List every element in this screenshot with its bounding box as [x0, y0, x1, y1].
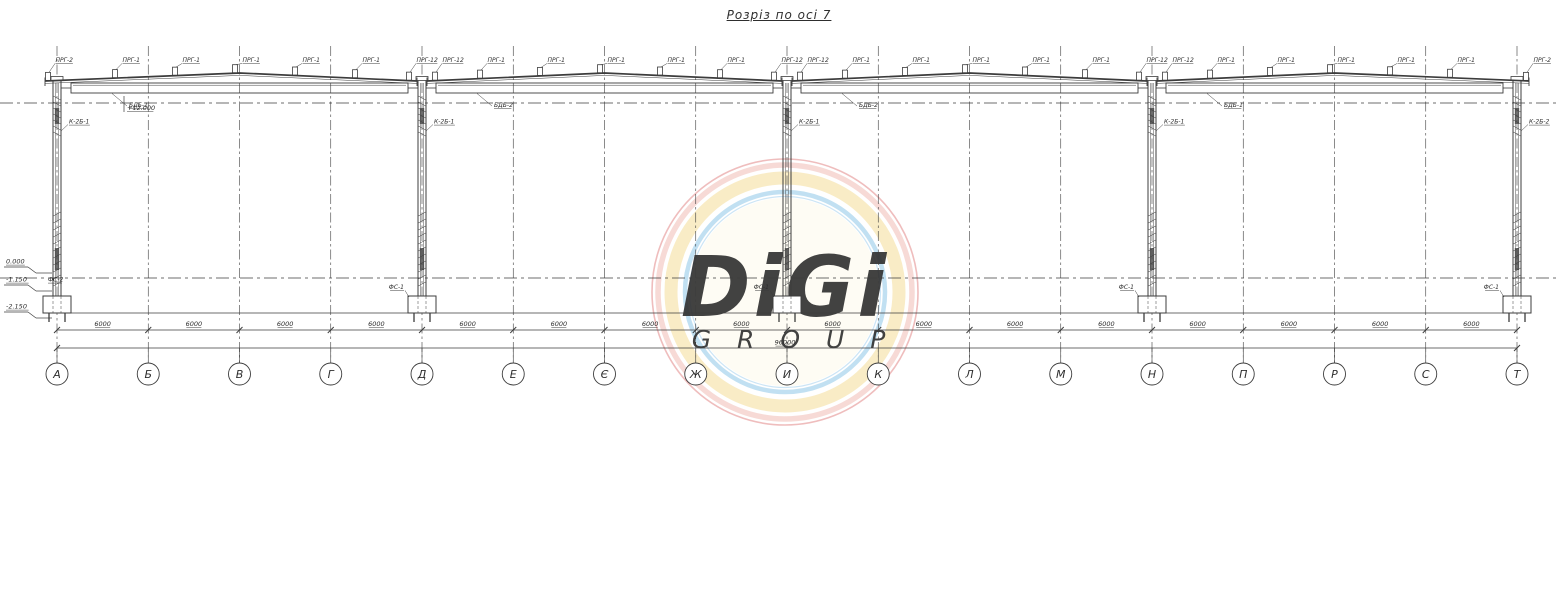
purlin-label-leader [1527, 64, 1533, 73]
purlin [903, 67, 908, 75]
column-label-leader [426, 125, 433, 132]
elevation-text: -1.150 [6, 276, 27, 284]
purlin-label-leader [541, 64, 547, 68]
bay-dimension-text: 6000 [186, 320, 203, 328]
purlin-label-leader [1140, 64, 1146, 73]
column-label-leader [791, 125, 798, 132]
purlin-label-leader [410, 64, 416, 73]
purlin-label: ПРГ-1 [1033, 57, 1050, 64]
purlin [353, 70, 358, 78]
purlin-label: ПРГ-1 [123, 57, 140, 64]
column-label-leader [1156, 125, 1163, 132]
axis-bubble-label: Ж [689, 368, 703, 381]
column-cap [1146, 77, 1158, 81]
purlin-label-leader [356, 64, 362, 70]
beam-label: БДБ-2 [859, 102, 878, 109]
purlin-label: ПРГ-1 [1458, 57, 1475, 64]
column-label: К-2Б-1 [1164, 119, 1184, 126]
purlin [1448, 69, 1453, 77]
footing [408, 296, 436, 313]
column-splice-mark [1150, 248, 1154, 270]
purlin-label: ПРГ-1 [303, 57, 320, 64]
column-cap [416, 77, 428, 81]
footing-label-leader [1500, 291, 1504, 298]
purlin-label-leader [846, 64, 852, 71]
axis-bubble-label: Б [144, 368, 152, 381]
elevation-flag-diag [28, 312, 36, 318]
axis-bubble-label: Н [1148, 368, 1156, 381]
column-label-leader [61, 125, 68, 132]
footing [1503, 296, 1531, 313]
bay-dimension-text: 6000 [1189, 320, 1206, 328]
purlin-label: ПРГ-1 [853, 57, 870, 64]
purlin [598, 65, 603, 73]
purlin [1083, 70, 1088, 78]
roof-span: БДБ-1ПРГ-2ПРГ-1ПРГ-1ПРГ-1ПРГ-1ПРГ-1ПРГ-1… [45, 57, 438, 109]
bay-dimension-text: 6000 [1098, 320, 1115, 328]
purlin-label-leader [1391, 64, 1397, 67]
beam-label: БДБ-1 [1224, 102, 1243, 109]
purlin-label: ПРГ-2 [1534, 57, 1552, 64]
purlin [718, 70, 723, 78]
column-splice-mark [55, 108, 59, 124]
purlin [658, 67, 663, 75]
column-label: К-2Б-1 [799, 119, 819, 126]
roof-level-text: +12.000 [127, 104, 155, 112]
column-splice-mark [785, 248, 789, 270]
purlin [1208, 70, 1213, 78]
column-splice-mark [1515, 108, 1519, 124]
footing-label: ФС-1 [754, 284, 769, 291]
roof-span: БДБ-1ПРГ-12ПРГ-1ПРГ-1ПРГ-1ПРГ-1ПРГ-1ПРГ-… [1156, 57, 1551, 109]
purlin-label: ПРГ-1 [548, 57, 565, 64]
purlin-label-leader [721, 64, 727, 70]
purlin-label-leader [436, 64, 442, 73]
purlin-label: ПРГ-12 [1173, 57, 1194, 64]
bay-dimension-text: 6000 [94, 320, 111, 328]
axis-bubble-label: М [1056, 368, 1066, 381]
bay-dimension-text: 6000 [459, 320, 476, 328]
purlin [772, 72, 777, 80]
purlin-label-leader [1331, 64, 1337, 65]
purlin-label: ПРГ-12 [782, 57, 803, 64]
purlin-label: ПРГ-1 [1278, 57, 1295, 64]
purlin-label: ПРГ-12 [443, 57, 464, 64]
purlin-label-leader [1026, 64, 1032, 68]
axis-bubble-label: Г [328, 368, 335, 381]
purlin-label: ПРГ-1 [973, 57, 990, 64]
beam-label: БДБ-2 [494, 102, 513, 109]
column-label: К-2Б-1 [434, 119, 454, 126]
bay-dimension-text: 6000 [1372, 320, 1389, 328]
bay-dimension-text: 6000 [916, 320, 933, 328]
purlin-label: ПРГ-1 [183, 57, 200, 64]
footing [773, 296, 801, 313]
axis-bubble-label: Л [964, 368, 973, 381]
roof-span: БДБ-2ПРГ-12ПРГ-1ПРГ-1ПРГ-1ПРГ-1ПРГ-1ПРГ-… [426, 57, 803, 109]
purlin [173, 67, 178, 75]
axis-bubble-label: К [874, 368, 883, 381]
purlin-label: ПРГ-1 [488, 57, 505, 64]
footing [43, 296, 71, 313]
purlin-label: ПРГ-1 [1398, 57, 1415, 64]
purlin-label-leader [801, 64, 807, 73]
purlin [798, 72, 803, 80]
axis-bubble-label: Е [510, 368, 517, 381]
purlin-label-leader [601, 64, 607, 65]
bay-dimension-text: 6000 [277, 320, 294, 328]
beam-label-leader [477, 94, 492, 107]
purlin-label: ПРГ-1 [243, 57, 260, 64]
purlin-label: ПРГ-1 [1218, 57, 1235, 64]
purlin [1524, 72, 1529, 80]
purlin [1023, 67, 1028, 75]
beam-label-leader [1207, 94, 1222, 107]
bay-dimension-text: 6000 [368, 320, 385, 328]
bay-dimension-text: 6000 [642, 320, 659, 328]
bay-dimension-text: 6000 [1007, 320, 1024, 328]
column-label-leader [1521, 125, 1528, 132]
axis-bubble-label: С [1422, 368, 1430, 381]
bay-dimension-text: 6000 [1281, 320, 1298, 328]
purlin-label-leader [775, 64, 781, 73]
section-drawing: DiGiG R O U PАБВГДЕЄЖИКЛМНПРСТ6000600060… [0, 0, 1558, 600]
purlin-label-leader [1086, 64, 1092, 70]
bay-dimension-text: 6000 [824, 320, 841, 328]
footing-label: ФС-1 [389, 284, 404, 291]
purlin-label: ПРГ-12 [1147, 57, 1168, 64]
column-label: К-2Б-1 [69, 119, 89, 126]
roof-top-chord [45, 73, 417, 81]
column-splice-mark [420, 248, 424, 270]
purlin-label-leader [1166, 64, 1172, 73]
purlin [407, 72, 412, 80]
purlin-label: ПРГ-1 [363, 57, 380, 64]
elevation-flag-diag [28, 267, 36, 273]
axis-bubble-label: И [783, 368, 791, 381]
purlin-label: ПРГ-12 [417, 57, 438, 64]
purlin-label-leader [966, 64, 972, 65]
purlin [46, 72, 51, 80]
purlin [113, 70, 118, 78]
purlin-label-leader [296, 64, 302, 68]
footing-label: ФС-1 [1119, 284, 1134, 291]
purlin [433, 72, 438, 80]
column-label: К-2Б-2 [1529, 119, 1550, 126]
purlin-label-leader [906, 64, 912, 68]
bay-dimension-text: 6000 [1463, 320, 1480, 328]
purlin [843, 70, 848, 78]
column-splice-mark [1515, 248, 1519, 270]
footing-label-leader [405, 291, 409, 298]
roof-span: БДБ-2ПРГ-12ПРГ-1ПРГ-1ПРГ-1ПРГ-1ПРГ-1ПРГ-… [791, 57, 1168, 109]
elevation-flag-diag [28, 285, 36, 291]
purlin-label: ПРГ-2 [56, 57, 74, 64]
footing [1138, 296, 1166, 313]
axis-bubble-label: Д [417, 368, 427, 381]
axis-bubble-label: В [236, 368, 244, 381]
total-dimension-text: 96000 [775, 339, 796, 347]
purlin [1268, 67, 1273, 75]
axis-bubble-label: Р [1331, 368, 1338, 381]
beam-label-leader [842, 94, 857, 107]
footing-label-leader [1135, 291, 1139, 298]
drawing-canvas: Розріз по осі 7 DiGiG R O U PАБВГДЕЄЖИКЛ… [0, 0, 1558, 600]
purlin-label-leader [1271, 64, 1277, 68]
purlin-label: ПРГ-1 [1338, 57, 1355, 64]
axis-bubble-label: Є [601, 368, 609, 381]
purlin-label: ПРГ-1 [728, 57, 745, 64]
purlin [538, 67, 543, 75]
column-group: К-2Б-1 [43, 77, 90, 323]
elevation-text: 0.000 [6, 258, 25, 266]
purlin [1388, 67, 1393, 75]
purlin-label: ПРГ-12 [808, 57, 829, 64]
purlin [1328, 65, 1333, 73]
bay-dimension-text: 6000 [733, 320, 750, 328]
roof-level-mark: +12.000 [124, 96, 155, 112]
purlin-label: ПРГ-1 [608, 57, 625, 64]
purlin-label-leader [1211, 64, 1217, 71]
purlin-label-leader [1451, 64, 1457, 70]
footing-label: ФС-2 [48, 277, 64, 284]
column-splice-mark [1150, 108, 1154, 124]
purlin [233, 65, 238, 73]
purlin-label-leader [481, 64, 487, 71]
column-splice-mark [55, 248, 59, 270]
purlin-label-leader [236, 64, 242, 65]
purlin-label: ПРГ-1 [668, 57, 685, 64]
purlin [963, 65, 968, 73]
purlin [293, 67, 298, 75]
purlin [478, 70, 483, 78]
axis-bubble-label: А [52, 368, 61, 381]
purlin [1137, 72, 1142, 80]
purlin-label-leader [116, 64, 122, 70]
purlin [1163, 72, 1168, 80]
bay-dimension-text: 6000 [551, 320, 568, 328]
purlin-label-leader [661, 64, 667, 68]
column-cap [781, 77, 793, 81]
purlin-label-leader [176, 64, 182, 68]
footing-label: ФС-1 [1484, 284, 1499, 291]
column-splice-mark [420, 108, 424, 124]
elevation-text: -2.150 [6, 303, 27, 311]
axis-bubble-label: П [1239, 368, 1247, 381]
purlin-label-leader [49, 64, 55, 73]
column-splice-mark [785, 108, 789, 124]
beam-label-leader [112, 94, 127, 107]
purlin-label: ПРГ-1 [913, 57, 930, 64]
purlin-label: ПРГ-1 [1093, 57, 1110, 64]
